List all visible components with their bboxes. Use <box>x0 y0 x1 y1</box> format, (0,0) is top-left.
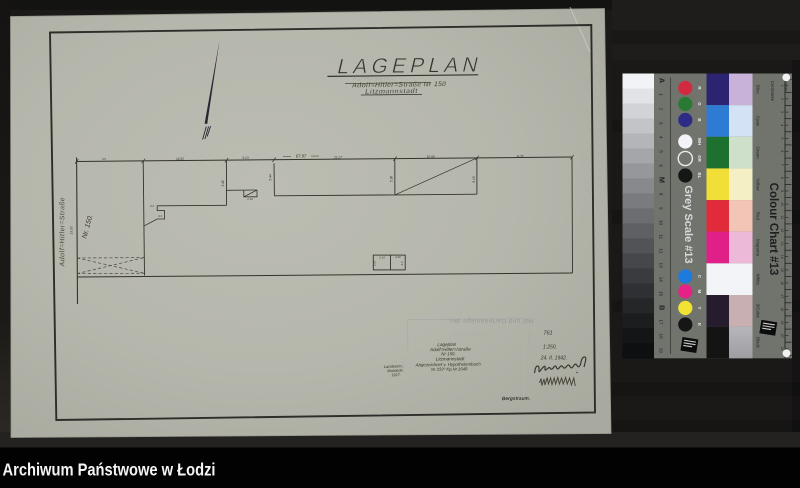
svg-text:2.19: 2.19 <box>246 197 253 201</box>
svg-text:2: 2 <box>780 98 784 100</box>
svg-text:6: 6 <box>659 164 664 167</box>
svg-text:2.0: 2.0 <box>400 261 404 266</box>
svg-text:18: 18 <box>659 334 664 340</box>
svg-text:Black: Black <box>756 337 761 349</box>
svg-text:Y: Y <box>697 307 702 310</box>
svg-text:3: 3 <box>659 122 664 125</box>
svg-text:M: M <box>658 177 667 183</box>
svg-text:Nr 333º Kp.Nr.1649: Nr 333º Kp.Nr.1649 <box>431 366 468 372</box>
svg-text:15: 15 <box>659 291 664 297</box>
svg-text:11: 11 <box>659 234 664 239</box>
svg-text:14.52: 14.52 <box>176 157 184 161</box>
svg-text:A: A <box>658 78 667 83</box>
svg-text:3.4: 3.4 <box>150 204 154 208</box>
svg-text:Archiwum Państwowe w Łodzi: Archiwum Państwowe w Łodzi <box>3 459 216 479</box>
svg-text:3/Color: 3/Color <box>756 304 761 319</box>
svg-text:BL: BL <box>697 173 702 179</box>
svg-text:Yellow: Yellow <box>756 178 761 191</box>
svg-text:4: 4 <box>659 136 664 139</box>
svg-text:4.5: 4.5 <box>102 157 106 161</box>
svg-text:4.3: 4.3 <box>158 214 162 218</box>
svg-text:4: 4 <box>780 124 784 126</box>
svg-text:18: 18 <box>780 307 784 311</box>
svg-text:2.40: 2.40 <box>394 255 401 259</box>
svg-text:8: 8 <box>780 177 784 179</box>
svg-text:17: 17 <box>780 294 784 298</box>
svg-text:3: 3 <box>780 111 784 113</box>
svg-text:24. II. 1942.: 24. II. 1942. <box>540 356 567 362</box>
svg-text:Magenta: Magenta <box>756 239 761 257</box>
svg-text:GR: GR <box>697 155 702 162</box>
svg-text:1927.: 1927. <box>391 373 401 377</box>
svg-text:mit den Einbauten: mit den Einbauten <box>452 332 488 337</box>
svg-text:9.13: 9.13 <box>242 156 248 160</box>
svg-text:1:250.: 1:250. <box>543 344 557 350</box>
svg-text:19: 19 <box>780 321 784 325</box>
svg-text:5.44: 5.44 <box>269 174 273 180</box>
svg-text:Bergstraum.: Bergstraum. <box>502 396 530 402</box>
svg-text:15: 15 <box>780 268 784 272</box>
svg-text:19: 19 <box>659 348 664 354</box>
svg-text:Colour Chart #13: Colour Chart #13 <box>767 183 779 276</box>
svg-text:21: 21 <box>780 347 784 351</box>
svg-text:13.90: 13.90 <box>70 226 74 234</box>
svg-text:10: 10 <box>780 202 784 206</box>
svg-text:16: 16 <box>780 281 784 285</box>
svg-text:2: 2 <box>659 108 664 111</box>
svg-text:Green: Green <box>756 146 761 159</box>
svg-text:Red: Red <box>756 212 761 221</box>
svg-text:PIOTRKOWSKA: PIOTRKOWSKA <box>353 77 394 82</box>
svg-text:Centimetre: Centimetre <box>770 81 775 102</box>
svg-text:6: 6 <box>780 151 784 153</box>
svg-text:Blue: Blue <box>756 85 761 94</box>
svg-text:20: 20 <box>780 334 784 338</box>
svg-text:M: M <box>697 290 702 294</box>
svg-text:10: 10 <box>659 220 664 226</box>
svg-text:761: 761 <box>543 331 552 337</box>
svg-text:3.48: 3.48 <box>221 180 225 186</box>
svg-text:WH: WH <box>697 138 702 145</box>
svg-text:12: 12 <box>659 248 664 254</box>
svg-text:2.14: 2.14 <box>378 255 385 259</box>
svg-text:12: 12 <box>780 229 784 233</box>
svg-text:9: 9 <box>659 207 664 210</box>
svg-text:13: 13 <box>780 242 784 246</box>
svg-text:67.97: 67.97 <box>296 153 307 158</box>
svg-text:6.10: 6.10 <box>472 176 476 182</box>
svg-text:5: 5 <box>780 137 784 139</box>
svg-text:B: B <box>697 118 702 121</box>
svg-text:1: 1 <box>780 85 784 87</box>
svg-text:9: 9 <box>780 190 784 192</box>
svg-text:17: 17 <box>659 319 664 325</box>
svg-text:11.55: 11.55 <box>517 154 524 158</box>
svg-text:13: 13 <box>659 263 664 269</box>
svg-text:5: 5 <box>659 150 664 153</box>
svg-text:7: 7 <box>780 164 784 166</box>
svg-text:11: 11 <box>780 216 784 220</box>
svg-text:B: B <box>658 305 667 310</box>
svg-text:10.99: 10.99 <box>427 155 435 159</box>
svg-text:G: G <box>697 102 702 106</box>
svg-text:1: 1 <box>659 93 664 96</box>
svg-text:14: 14 <box>659 277 664 283</box>
svg-text:2.18: 2.18 <box>373 260 377 267</box>
svg-text:21.27: 21.27 <box>333 156 342 160</box>
svg-text:Hof und Gartenanlage des...: Hof und Gartenanlage des... <box>442 317 533 324</box>
svg-text:14: 14 <box>780 255 784 259</box>
svg-text:White: White <box>756 274 761 286</box>
svg-text:8: 8 <box>659 193 664 196</box>
svg-text:Grey Scale #13: Grey Scale #13 <box>682 185 694 263</box>
svg-text:5.36: 5.36 <box>389 176 393 182</box>
svg-text:Cyan: Cyan <box>756 116 761 127</box>
svg-text:Adolf=Hitler=Straße: Adolf=Hitler=Straße <box>60 197 67 268</box>
